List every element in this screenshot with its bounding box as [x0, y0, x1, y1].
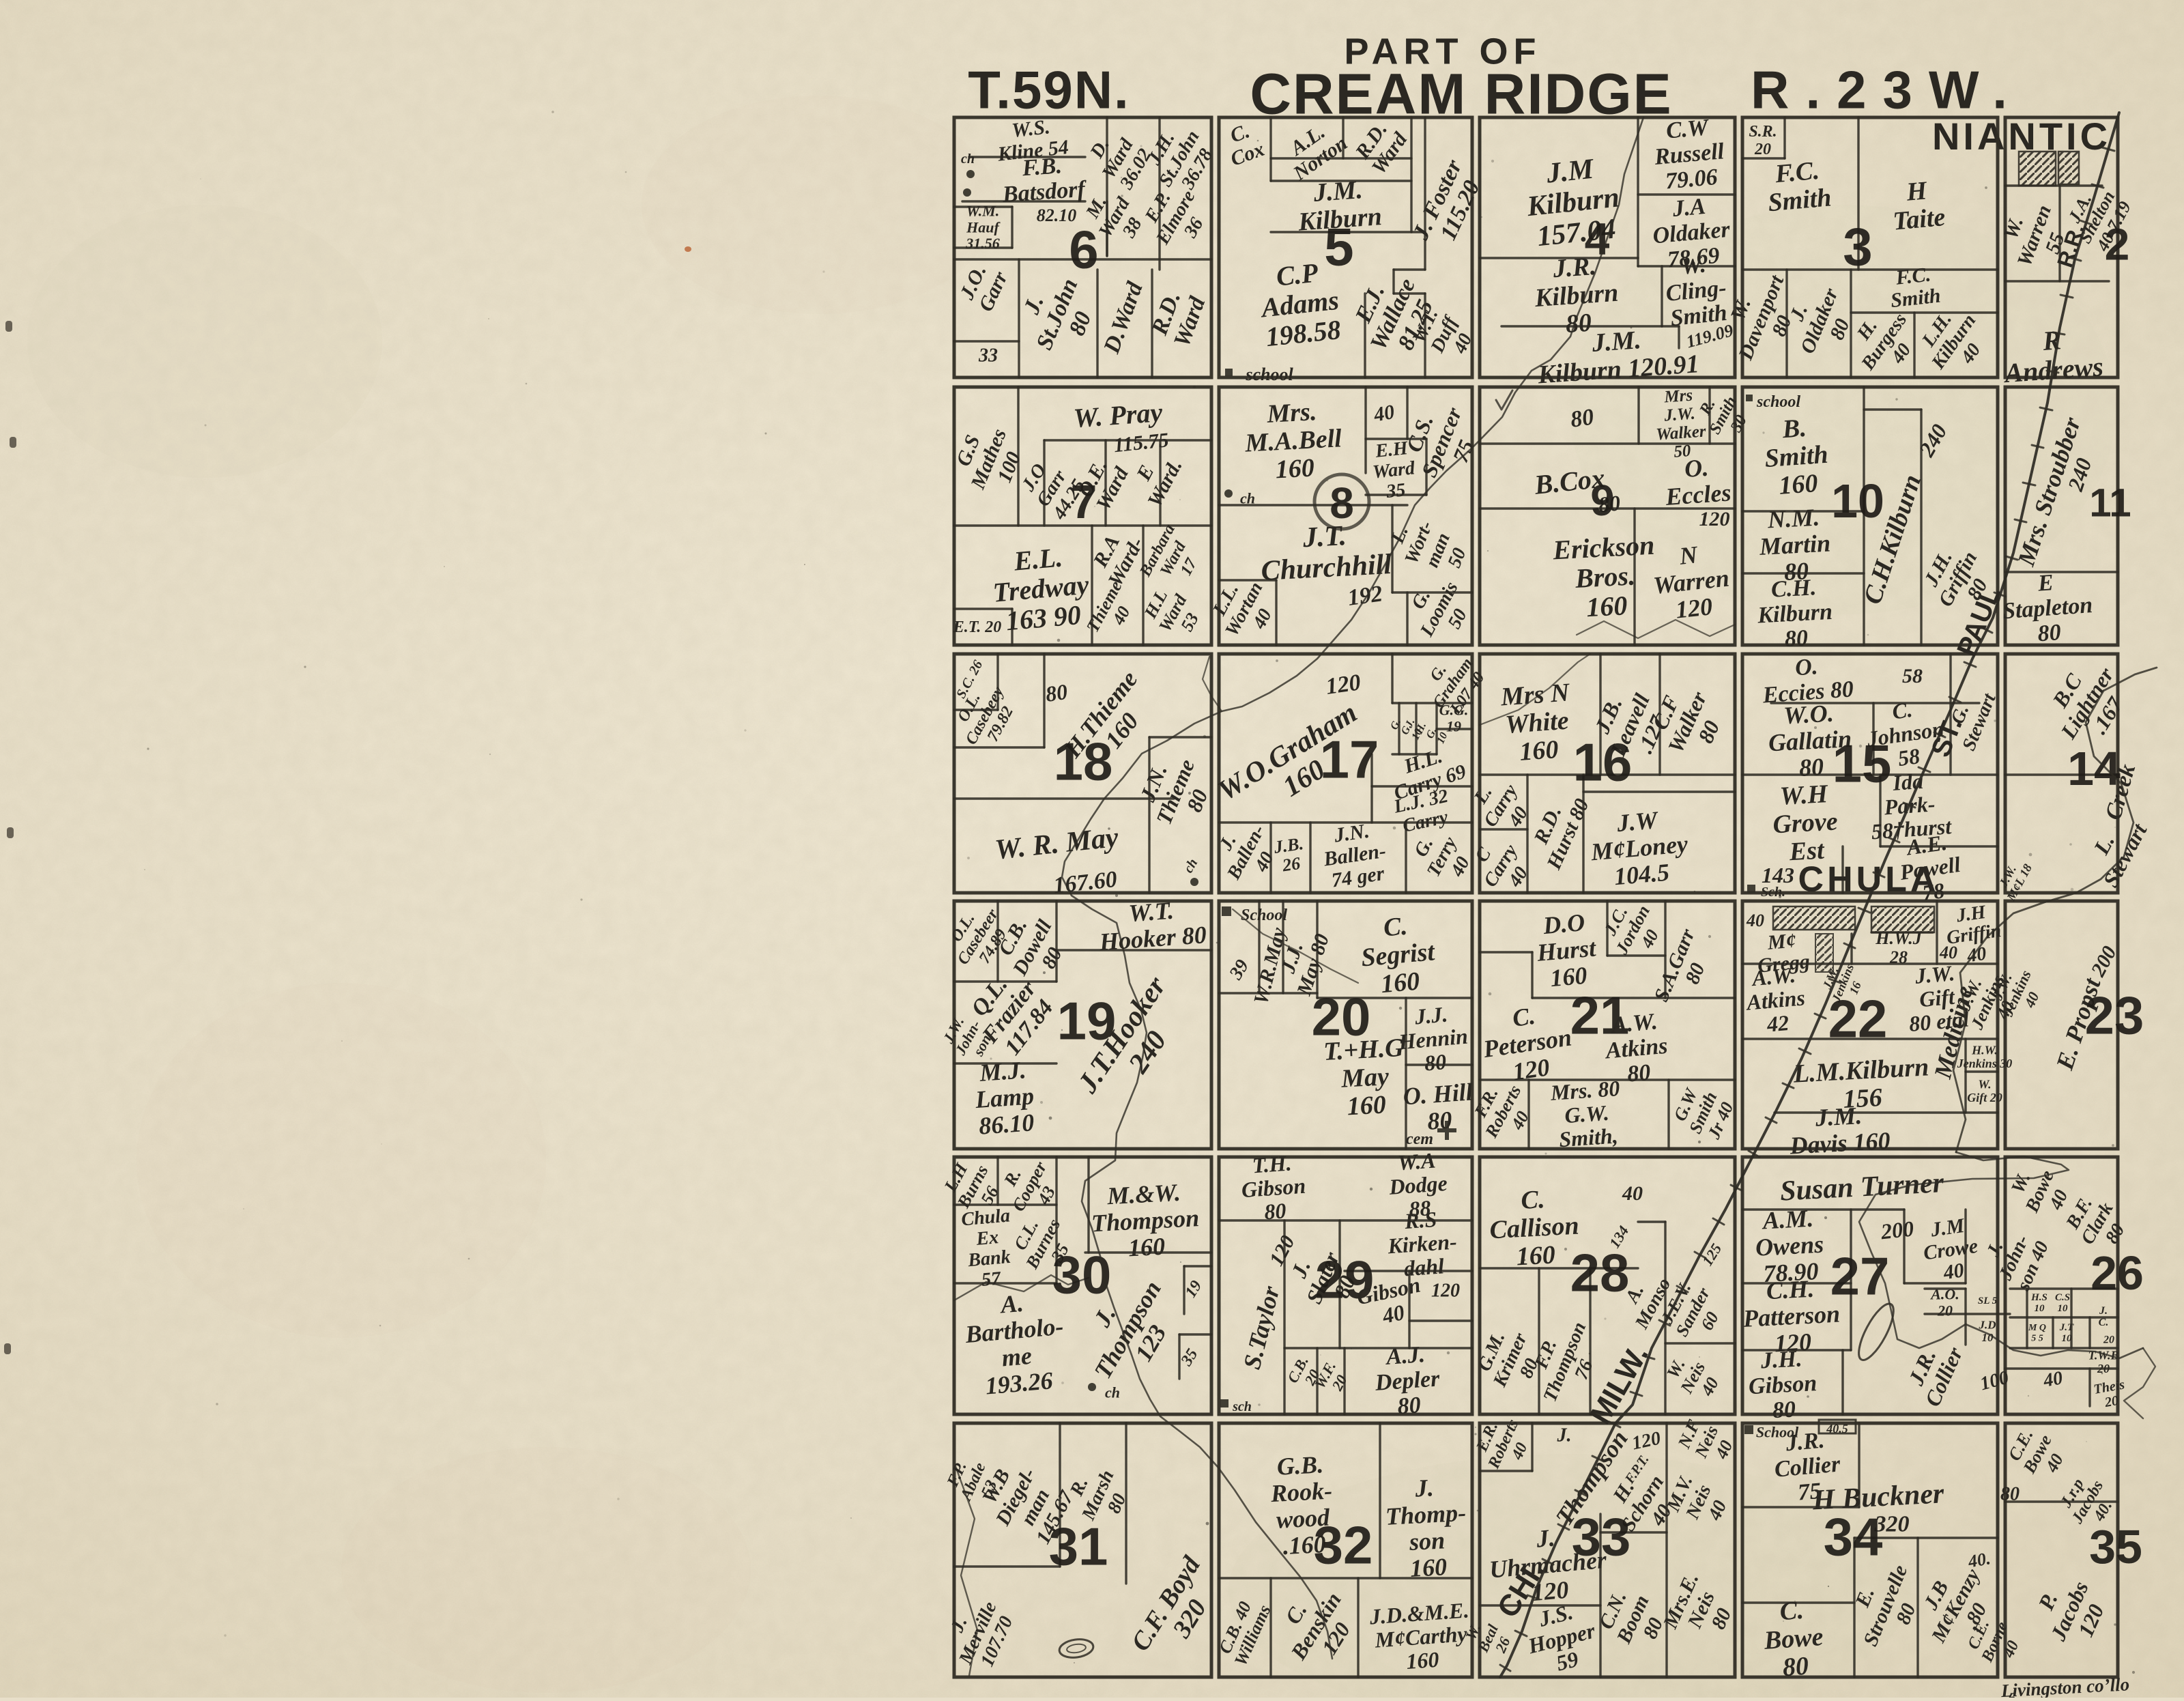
svg-text:10: 10: [1831, 474, 1884, 528]
svg-text:40: 40: [1371, 401, 1396, 427]
svg-text:143: 143: [1762, 863, 1794, 887]
svg-text:3: 3: [1843, 217, 1872, 277]
svg-text:120: 120: [1431, 1281, 1460, 1302]
svg-text:school: school: [1245, 364, 1293, 384]
svg-text:40.5: 40.5: [1826, 1422, 1848, 1435]
svg-text:30: 30: [1052, 1245, 1112, 1305]
svg-text:ch: ch: [961, 152, 975, 167]
svg-text:11: 11: [2089, 481, 2131, 526]
svg-text:ch: ch: [1240, 490, 1255, 507]
svg-text:200: 200: [1879, 1216, 1914, 1244]
svg-text:cem: cem: [1406, 1130, 1433, 1148]
svg-text:R.23W.: R.23W.: [1751, 60, 2024, 120]
svg-text:J.: J.: [1557, 1425, 1572, 1446]
svg-text:7: 7: [1071, 475, 1097, 528]
svg-text:J.C.: J.C.: [2099, 1305, 2109, 1328]
svg-text:9: 9: [1590, 476, 1615, 525]
svg-text:33: 33: [978, 345, 998, 367]
svg-text:ch: ch: [1105, 1384, 1120, 1401]
svg-text:15: 15: [1833, 734, 1892, 794]
svg-text:SL 5: SL 5: [1978, 1296, 1998, 1306]
svg-text:20: 20: [2103, 1334, 2114, 1345]
svg-text:120: 120: [1324, 670, 1362, 700]
svg-text:17: 17: [1320, 730, 1379, 790]
svg-text:5: 5: [1324, 217, 1353, 277]
svg-text:40: 40: [2041, 1367, 2065, 1392]
svg-text:W.M.Hauf31.56: W.M.Hauf31.56: [965, 203, 1001, 253]
svg-text:58: 58: [1902, 665, 1923, 687]
svg-text:E.T. 20: E.T. 20: [953, 618, 1001, 636]
svg-text:31: 31: [1049, 1517, 1108, 1577]
svg-text:27: 27: [1830, 1246, 1890, 1306]
svg-text:22: 22: [1828, 989, 1888, 1049]
svg-text:192: 192: [1346, 581, 1384, 611]
svg-text:40.: 40.: [1966, 1548, 1992, 1571]
svg-text:2: 2: [2105, 218, 2130, 269]
svg-text:18: 18: [1054, 732, 1113, 792]
svg-text:40: 40: [1746, 911, 1764, 930]
svg-text:35: 35: [2089, 1520, 2142, 1573]
svg-text:34: 34: [1824, 1507, 1883, 1567]
svg-text:80: 80: [1569, 404, 1596, 432]
svg-text:14: 14: [2067, 742, 2121, 795]
svg-text:6: 6: [2009, 1689, 2016, 1698]
svg-text:W. Pray: W. Pray: [1072, 397, 1163, 433]
svg-text:32: 32: [1314, 1515, 1373, 1575]
svg-text:28: 28: [1570, 1243, 1630, 1303]
svg-text:CHULA: CHULA: [1798, 860, 1940, 900]
svg-text:40: 40: [1622, 1182, 1643, 1205]
svg-text:16: 16: [1573, 732, 1633, 792]
svg-text:school: school: [1756, 393, 1800, 411]
svg-text:6: 6: [1069, 220, 1098, 280]
svg-text:T.59N.: T.59N.: [968, 60, 1130, 120]
svg-text:120: 120: [1699, 508, 1730, 530]
svg-text:26: 26: [2090, 1246, 2144, 1300]
svg-text:80: 80: [2000, 1484, 2020, 1505]
svg-text:80: 80: [1044, 679, 1069, 706]
svg-text:23: 23: [2085, 986, 2144, 1046]
svg-text:sch: sch: [1232, 1399, 1252, 1414]
svg-text:Sch.: Sch.: [1761, 885, 1785, 900]
